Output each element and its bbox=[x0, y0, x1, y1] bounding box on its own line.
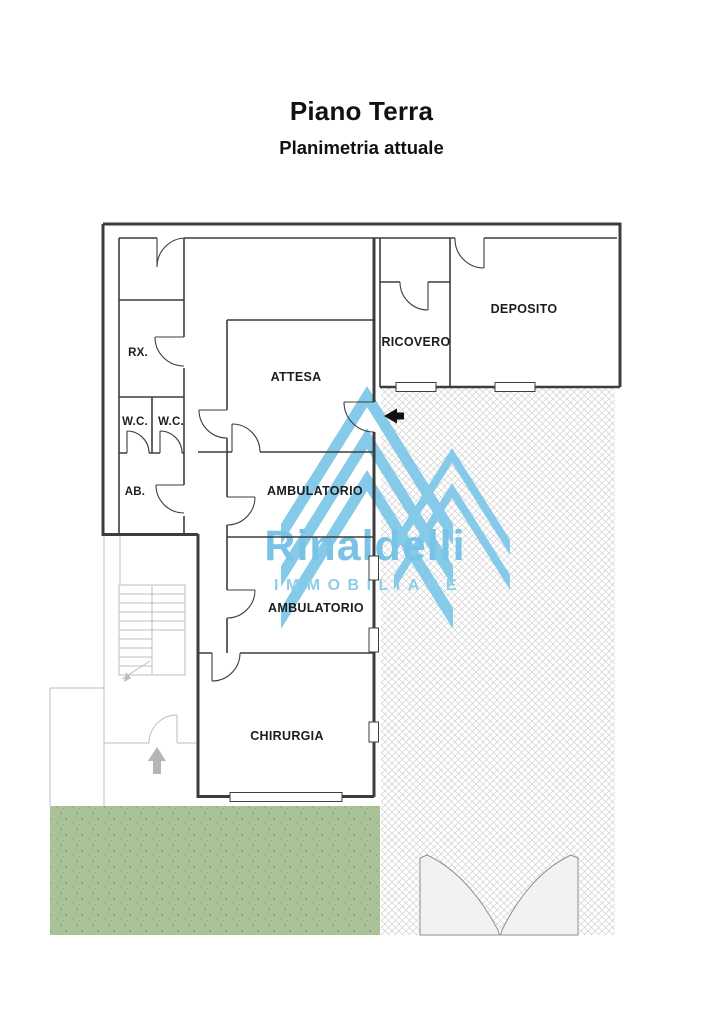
floor-plan-page: Piano Terra Planimetria attuale bbox=[0, 0, 723, 1024]
room-label-wc-right: W.C. bbox=[158, 416, 184, 428]
room-label-wc-left: W.C. bbox=[122, 416, 148, 428]
stairs-up-arrow-icon bbox=[148, 747, 166, 774]
floor-plan-svg: Rinaldelli IMMOBILIARE bbox=[0, 0, 723, 1024]
room-label-ricovero: RICOVERO bbox=[381, 335, 450, 349]
room-label-ab: AB. bbox=[125, 486, 145, 498]
room-label-deposito: DEPOSITO bbox=[491, 302, 558, 316]
brand-name: Rinaldelli bbox=[264, 522, 465, 570]
room-label-chirurgia: CHIRURGIA bbox=[250, 729, 324, 743]
room-label-rx: RX. bbox=[128, 347, 148, 359]
room-label-ambulatorio-1: AMBULATORIO bbox=[267, 484, 363, 498]
room-label-attesa: ATTESA bbox=[271, 370, 322, 384]
garden-area bbox=[50, 806, 380, 935]
room-label-ambulatorio-2: AMBULATORIO bbox=[268, 601, 364, 615]
staircase bbox=[50, 536, 198, 806]
